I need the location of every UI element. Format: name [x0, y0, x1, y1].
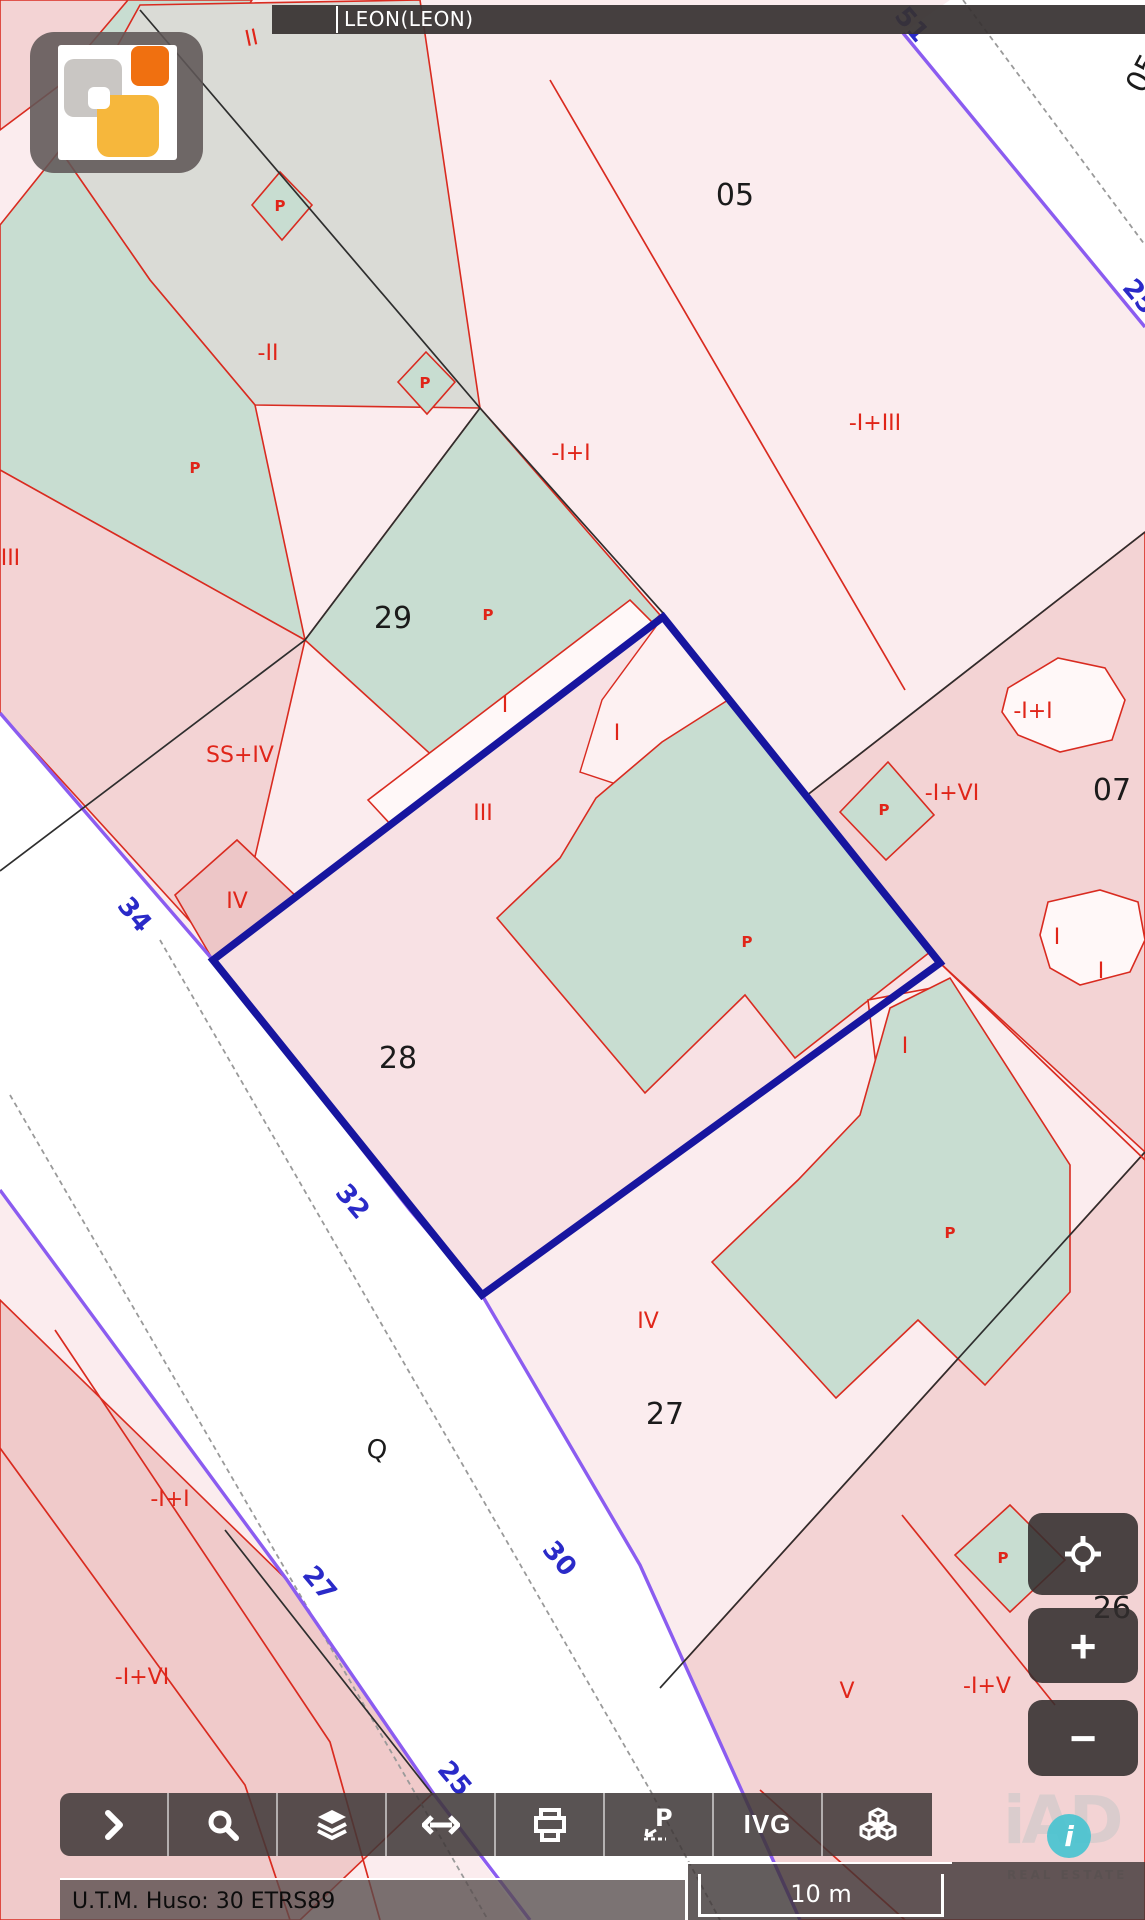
- locate-button[interactable]: [1028, 1513, 1138, 1595]
- ivg-button[interactable]: IVG: [714, 1793, 823, 1856]
- municipality-name: LEON(LEON): [336, 6, 474, 33]
- scale-bracket: 10 m: [698, 1874, 944, 1917]
- zoom-in-button[interactable]: +: [1028, 1608, 1138, 1683]
- map-label: -II: [258, 341, 279, 366]
- logo-notch: [88, 87, 110, 109]
- utm-statusbar: U.T.M. Huso: 30 ETRS89: [60, 1878, 685, 1920]
- point-p-icon: P: [640, 1806, 678, 1844]
- map-label: I: [614, 721, 621, 746]
- cadastre-layers-logo[interactable]: [30, 32, 203, 173]
- logo-tile: [58, 45, 177, 160]
- map-label: SS+IV: [206, 743, 274, 768]
- parcel-number: 29: [374, 601, 412, 636]
- crosshair-icon: [1063, 1534, 1103, 1574]
- map-label: -I+III: [849, 411, 901, 436]
- chevron-right-icon: [95, 1806, 133, 1844]
- print-button[interactable]: [496, 1793, 605, 1856]
- parcel-number: 27: [646, 1397, 684, 1432]
- expand-button[interactable]: [60, 1793, 169, 1856]
- patio-mark: P: [742, 933, 753, 951]
- patio-mark: P: [420, 374, 431, 392]
- arrows-horizontal-icon: [422, 1806, 460, 1844]
- map-label: I: [502, 693, 509, 718]
- map-label: -I+I: [551, 441, 590, 466]
- patio-mark: P: [275, 197, 286, 215]
- layers-button[interactable]: [278, 1793, 387, 1856]
- map-label: -I+VI: [115, 1665, 169, 1690]
- zoom-out-button[interactable]: −: [1028, 1700, 1138, 1776]
- parcel-number: 28: [379, 1041, 417, 1076]
- measure-button[interactable]: [387, 1793, 496, 1856]
- patio-mark: P: [483, 606, 494, 624]
- map-label: -I+VI: [925, 781, 979, 806]
- cubes-icon: [859, 1806, 897, 1844]
- printer-icon: [531, 1806, 569, 1844]
- svg-text:P: P: [655, 1806, 673, 1832]
- bottom-right-band: [952, 1862, 1145, 1920]
- map-label: I: [1054, 925, 1061, 950]
- map-label: -I+V: [963, 1674, 1011, 1699]
- search-button[interactable]: [169, 1793, 278, 1856]
- scale-bar: 10 m: [688, 1862, 952, 1920]
- map-label: I: [902, 1034, 909, 1059]
- patio-mark: P: [998, 1549, 1009, 1567]
- map-label: -I+I: [1013, 699, 1052, 724]
- info-icon[interactable]: i: [1047, 1814, 1091, 1858]
- parcel-number: 05: [716, 178, 754, 213]
- ivg-button-label: IVG: [744, 1809, 792, 1840]
- map-label: -I+I: [150, 1487, 189, 1512]
- parcel-number: 07: [1093, 773, 1131, 808]
- map-label: I: [1098, 959, 1105, 984]
- cadastral-map-viewer: 05292827072605QII-II-I+I-I+III-I+IIISS+I…: [0, 0, 1145, 1920]
- point-data-button[interactable]: P: [605, 1793, 714, 1856]
- layers-icon: [313, 1806, 351, 1844]
- map-label: -I+III: [0, 546, 20, 571]
- logo-orange-square: [131, 46, 169, 86]
- utm-text: U.T.M. Huso: 30 ETRS89: [72, 1889, 335, 1914]
- scale-label: 10 m: [701, 1880, 941, 1908]
- map-label: IV: [637, 1309, 659, 1334]
- cadastral-map[interactable]: 05292827072605QII-II-I+I-I+III-I+IIISS+I…: [0, 0, 1145, 1920]
- patio-mark: P: [190, 459, 201, 477]
- map-toolbar: PIVG: [60, 1793, 932, 1856]
- cartography-3d-button[interactable]: [823, 1793, 932, 1856]
- patio-mark: P: [879, 801, 890, 819]
- search-icon: [204, 1806, 242, 1844]
- map-label: III: [473, 801, 492, 826]
- map-label: IV: [226, 889, 248, 914]
- map-label: V: [839, 1679, 854, 1704]
- municipality-bar: LEON(LEON): [272, 5, 1145, 34]
- patio-mark: P: [945, 1224, 956, 1242]
